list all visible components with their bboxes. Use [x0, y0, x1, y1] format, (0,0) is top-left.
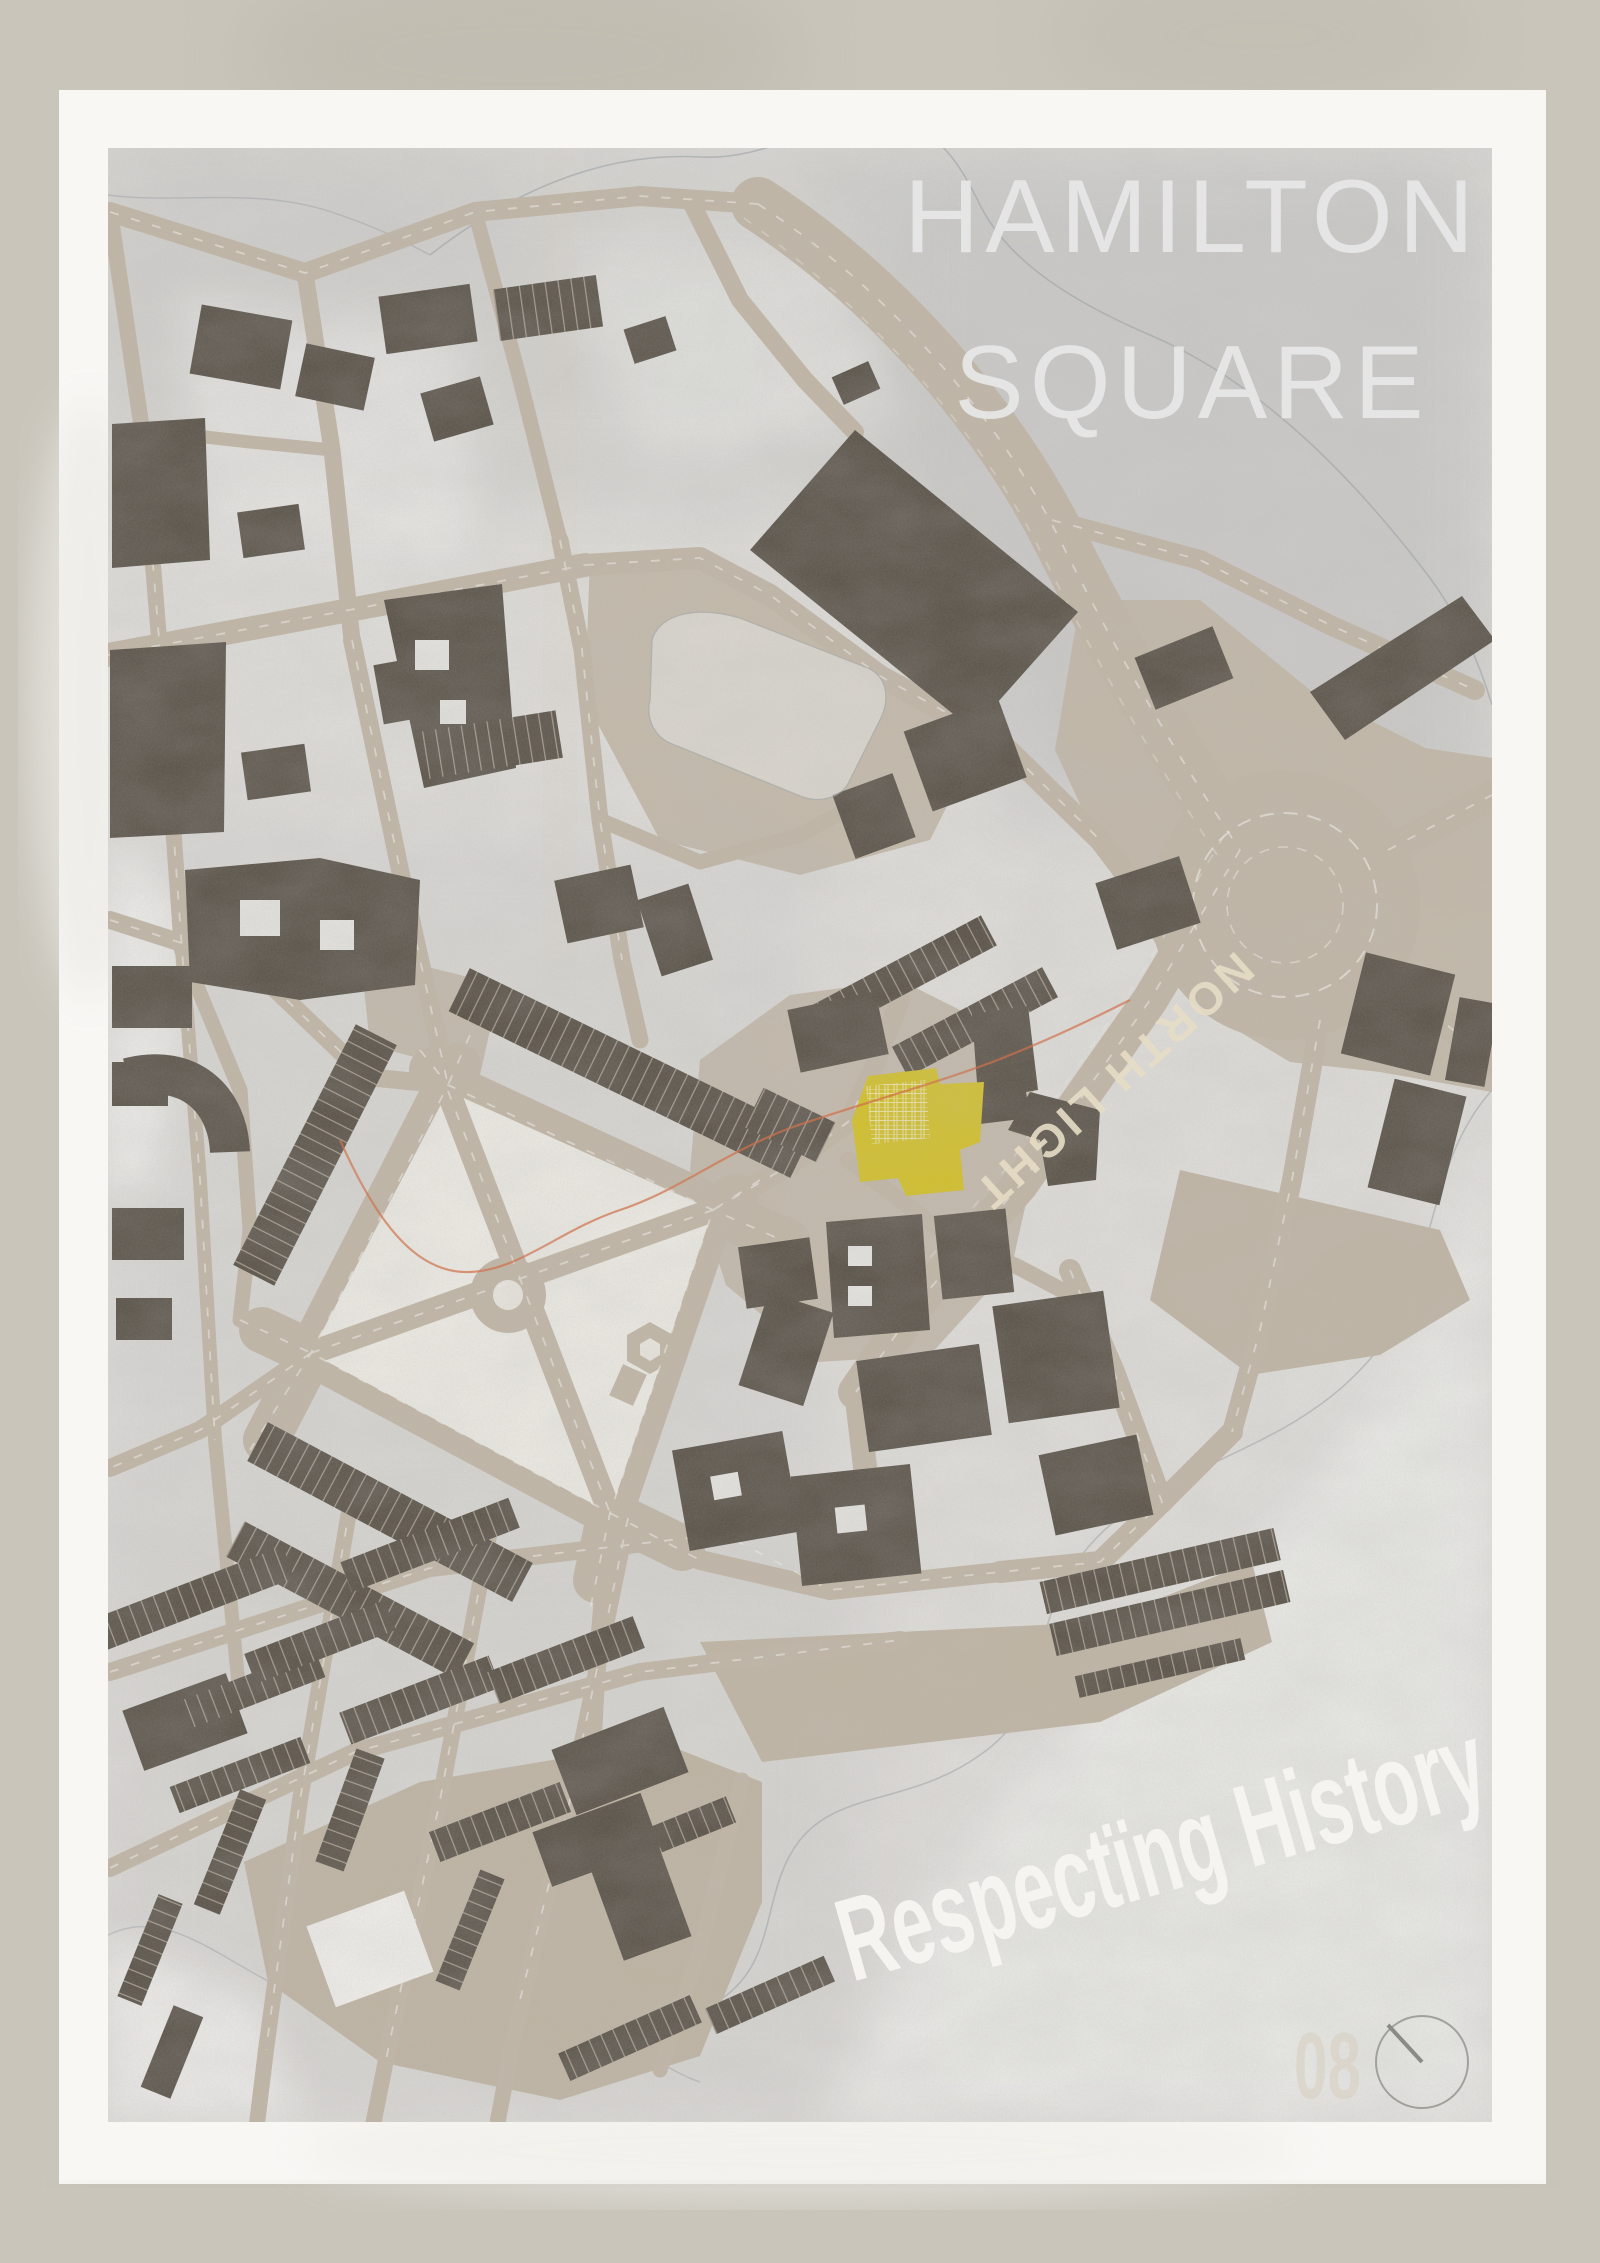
svg-text:08: 08 — [1294, 2013, 1361, 2118]
svg-text:SQUARE: SQUARE — [954, 325, 1429, 441]
svg-text:HAMILTON: HAMILTON — [904, 159, 1480, 275]
